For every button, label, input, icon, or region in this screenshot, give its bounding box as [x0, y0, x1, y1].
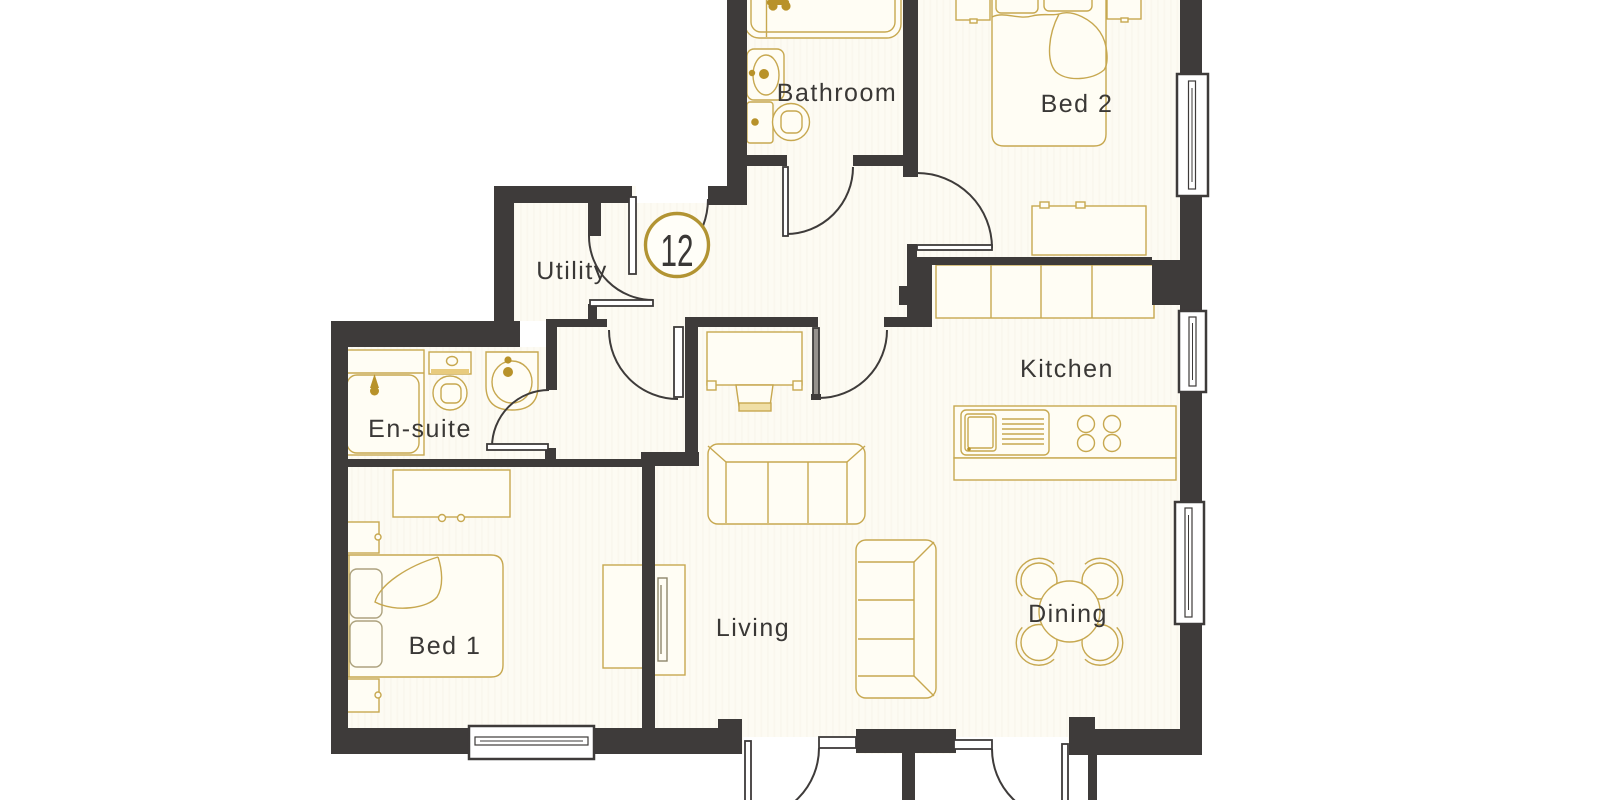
- svg-text:Bathroom: Bathroom: [777, 79, 897, 107]
- svg-text:En-suite: En-suite: [368, 415, 472, 443]
- svg-text:12: 12: [661, 225, 694, 276]
- svg-text:Dining: Dining: [1028, 600, 1108, 628]
- svg-text:Bed 2: Bed 2: [1041, 90, 1114, 118]
- svg-text:Utility: Utility: [536, 257, 608, 285]
- svg-text:Living: Living: [716, 614, 790, 642]
- svg-text:Bed 1: Bed 1: [409, 632, 482, 660]
- svg-text:Kitchen: Kitchen: [1020, 355, 1114, 383]
